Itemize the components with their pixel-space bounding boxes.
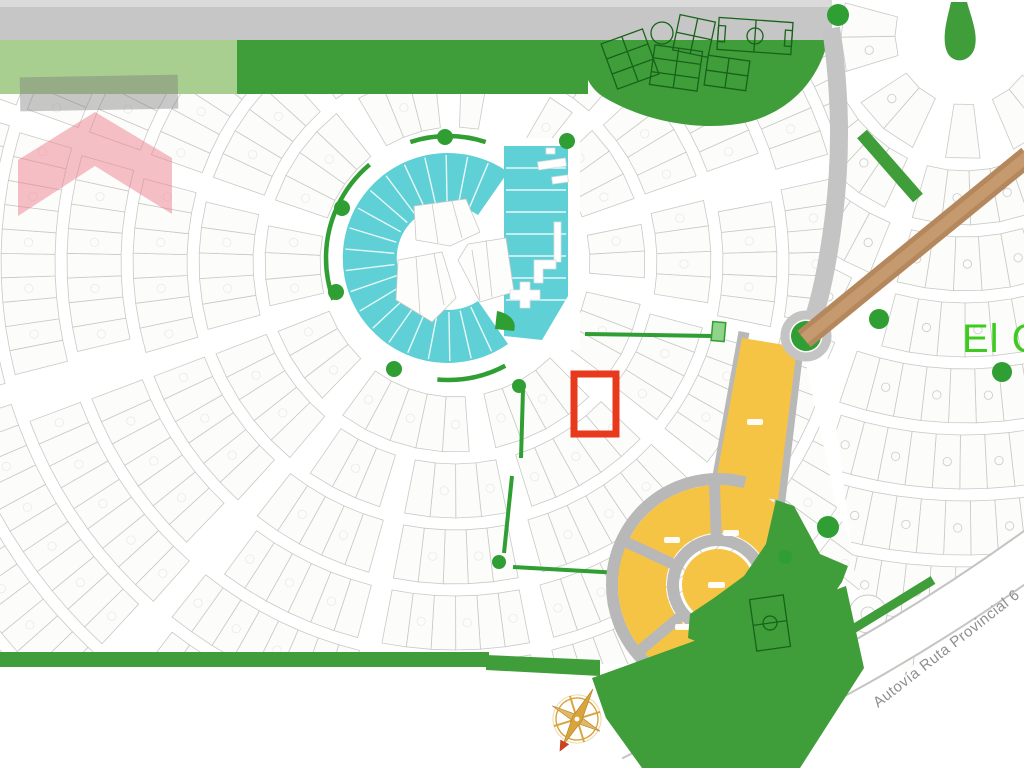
lot bbox=[991, 631, 1020, 687]
lot bbox=[908, 732, 962, 768]
lot bbox=[0, 110, 9, 147]
lot-number-circle bbox=[180, 669, 188, 677]
lot-number-circle bbox=[127, 714, 135, 722]
ring-radial-road bbox=[714, 481, 716, 539]
tree-icon bbox=[559, 133, 575, 149]
lot-number-circle bbox=[498, 682, 506, 690]
lot bbox=[383, 724, 412, 768]
lot bbox=[188, 736, 232, 768]
tree-icon bbox=[437, 129, 453, 145]
lot-number-circle bbox=[845, 743, 853, 751]
lot bbox=[875, 762, 927, 768]
lot-number-circle bbox=[880, 712, 888, 720]
lot bbox=[1001, 696, 1024, 752]
lot bbox=[456, 728, 480, 768]
lot-number-circle bbox=[508, 461, 516, 469]
lot-number-circle bbox=[947, 739, 955, 747]
lot-number-circle bbox=[881, 717, 889, 725]
lot-number-circle bbox=[607, 104, 615, 112]
lot-number-circle bbox=[304, 728, 312, 736]
lot-number-circle bbox=[1013, 764, 1021, 768]
lot bbox=[590, 251, 645, 278]
tree-icon bbox=[512, 379, 526, 393]
tree-icon bbox=[817, 516, 839, 538]
lot bbox=[949, 369, 977, 423]
lot-number-circle bbox=[514, 367, 522, 375]
lot bbox=[359, 720, 390, 768]
tree-icon bbox=[778, 550, 792, 564]
lot bbox=[990, 742, 1024, 768]
lot bbox=[444, 662, 469, 716]
lot-number-circle bbox=[985, 721, 993, 729]
lot bbox=[657, 251, 711, 277]
lot bbox=[923, 698, 951, 753]
region-label: El C bbox=[962, 317, 1024, 361]
lot bbox=[0, 748, 19, 768]
strip-label-pill bbox=[747, 419, 763, 425]
entrance-gate bbox=[711, 322, 726, 342]
lot bbox=[975, 759, 1024, 768]
lot-number-circle bbox=[207, 761, 215, 768]
lot bbox=[199, 253, 253, 279]
tree-icon bbox=[492, 555, 506, 569]
lot bbox=[0, 674, 37, 728]
lot bbox=[407, 726, 434, 768]
tree-icon bbox=[386, 361, 402, 377]
site-plan-map: Autovía Ruta Provincial 6 Autovía Ruta P… bbox=[0, 0, 1024, 768]
top-road-shoulder bbox=[0, 0, 832, 7]
lot bbox=[167, 725, 213, 768]
lot-number-circle bbox=[869, 0, 877, 6]
lot bbox=[896, 696, 926, 752]
lot-number-circle bbox=[406, 682, 414, 690]
lot bbox=[976, 698, 1004, 753]
tree-icon bbox=[827, 4, 849, 26]
lot bbox=[587, 224, 644, 254]
lot bbox=[1010, 18, 1024, 59]
lot bbox=[0, 690, 53, 745]
lot-number-circle bbox=[6, 697, 14, 705]
lot-number-circle bbox=[975, 656, 983, 664]
lot bbox=[54, 734, 105, 768]
green-band bbox=[0, 652, 489, 667]
tree-icon bbox=[992, 362, 1012, 382]
lot bbox=[0, 641, 7, 694]
lot bbox=[477, 726, 504, 768]
lot bbox=[243, 688, 285, 747]
lot-number-circle bbox=[394, 748, 402, 756]
lot-number-circle bbox=[973, 57, 981, 65]
lot bbox=[1017, 40, 1024, 79]
lot-number-circle bbox=[166, 739, 174, 747]
lot bbox=[255, 762, 294, 768]
tree-icon bbox=[869, 309, 889, 329]
lot bbox=[431, 728, 455, 768]
lot bbox=[824, 719, 876, 768]
lot bbox=[210, 745, 253, 768]
lot bbox=[0, 362, 5, 397]
lot bbox=[0, 733, 3, 768]
lot bbox=[405, 460, 436, 517]
lot-number-circle bbox=[440, 751, 448, 759]
lot bbox=[289, 704, 327, 762]
teal-lot-line bbox=[449, 312, 450, 361]
lot bbox=[232, 754, 273, 768]
lot-number-circle bbox=[1017, 0, 1024, 1]
lot bbox=[982, 648, 1024, 699]
lot-number-circle bbox=[486, 750, 494, 758]
lot bbox=[93, 759, 142, 768]
lot bbox=[499, 723, 528, 768]
lot bbox=[67, 253, 121, 278]
lot bbox=[521, 720, 553, 768]
lot-number-circle bbox=[324, 299, 332, 307]
lot bbox=[654, 274, 710, 303]
compass-south-tip bbox=[555, 740, 569, 754]
lot bbox=[1, 253, 55, 277]
lot bbox=[133, 253, 187, 278]
lot bbox=[944, 501, 971, 555]
lot bbox=[841, 704, 894, 760]
lot bbox=[996, 629, 1024, 679]
lot bbox=[950, 699, 977, 753]
lot bbox=[106, 690, 156, 747]
lot bbox=[953, 237, 982, 291]
lot bbox=[1016, 628, 1024, 685]
lot bbox=[266, 274, 324, 306]
lot-number-circle bbox=[452, 685, 460, 693]
lot bbox=[924, 716, 979, 768]
lot bbox=[126, 702, 175, 760]
lot bbox=[992, 0, 1024, 18]
green-cul-de-sac bbox=[945, 2, 976, 60]
lot-number-circle bbox=[998, 145, 1006, 153]
lot-number-circle bbox=[1007, 668, 1015, 676]
lot bbox=[723, 252, 777, 277]
lot bbox=[146, 714, 193, 768]
lot bbox=[419, 661, 445, 716]
lot bbox=[960, 435, 988, 490]
lot bbox=[1008, 611, 1024, 660]
lot-number-circle bbox=[872, 329, 880, 337]
lot bbox=[200, 668, 246, 727]
lot bbox=[265, 253, 320, 280]
tree-icon bbox=[328, 284, 344, 300]
lot bbox=[892, 747, 945, 768]
lot-number-circle bbox=[473, 422, 481, 430]
teal-lot-line bbox=[446, 155, 447, 204]
lot bbox=[266, 696, 306, 755]
lot bbox=[221, 678, 265, 737]
lot bbox=[442, 397, 469, 452]
lot bbox=[946, 104, 981, 158]
lot bbox=[265, 226, 322, 255]
lot bbox=[73, 747, 123, 768]
lot bbox=[932, 434, 960, 489]
lot bbox=[1, 276, 56, 302]
lot-number-circle bbox=[933, 721, 941, 729]
lot-number-circle bbox=[828, 459, 836, 467]
lot bbox=[1, 229, 56, 255]
lot bbox=[940, 700, 995, 753]
lot-number-circle bbox=[784, 176, 792, 184]
tree-icon bbox=[334, 200, 350, 216]
site-plan-screenshot: Autovía Ruta Provincial 6 Autovía Ruta P… bbox=[0, 0, 1024, 768]
lot-number-circle bbox=[76, 758, 84, 766]
lot bbox=[841, 3, 897, 37]
lot bbox=[908, 0, 966, 2]
lot bbox=[87, 676, 138, 733]
lot-number-circle bbox=[756, 133, 764, 141]
watermark-bar bbox=[20, 75, 179, 112]
lot bbox=[312, 710, 348, 768]
lot-number-circle bbox=[532, 744, 540, 752]
lot bbox=[841, 36, 898, 71]
green-strip-sports-area bbox=[237, 40, 828, 126]
lot bbox=[970, 500, 998, 555]
lot-number-circle bbox=[781, 265, 789, 273]
lot-number-circle bbox=[219, 693, 227, 701]
lot bbox=[443, 530, 468, 584]
lot-number-circle bbox=[261, 713, 269, 721]
lot bbox=[1001, 0, 1024, 38]
lot bbox=[431, 595, 456, 650]
lot bbox=[456, 595, 481, 650]
